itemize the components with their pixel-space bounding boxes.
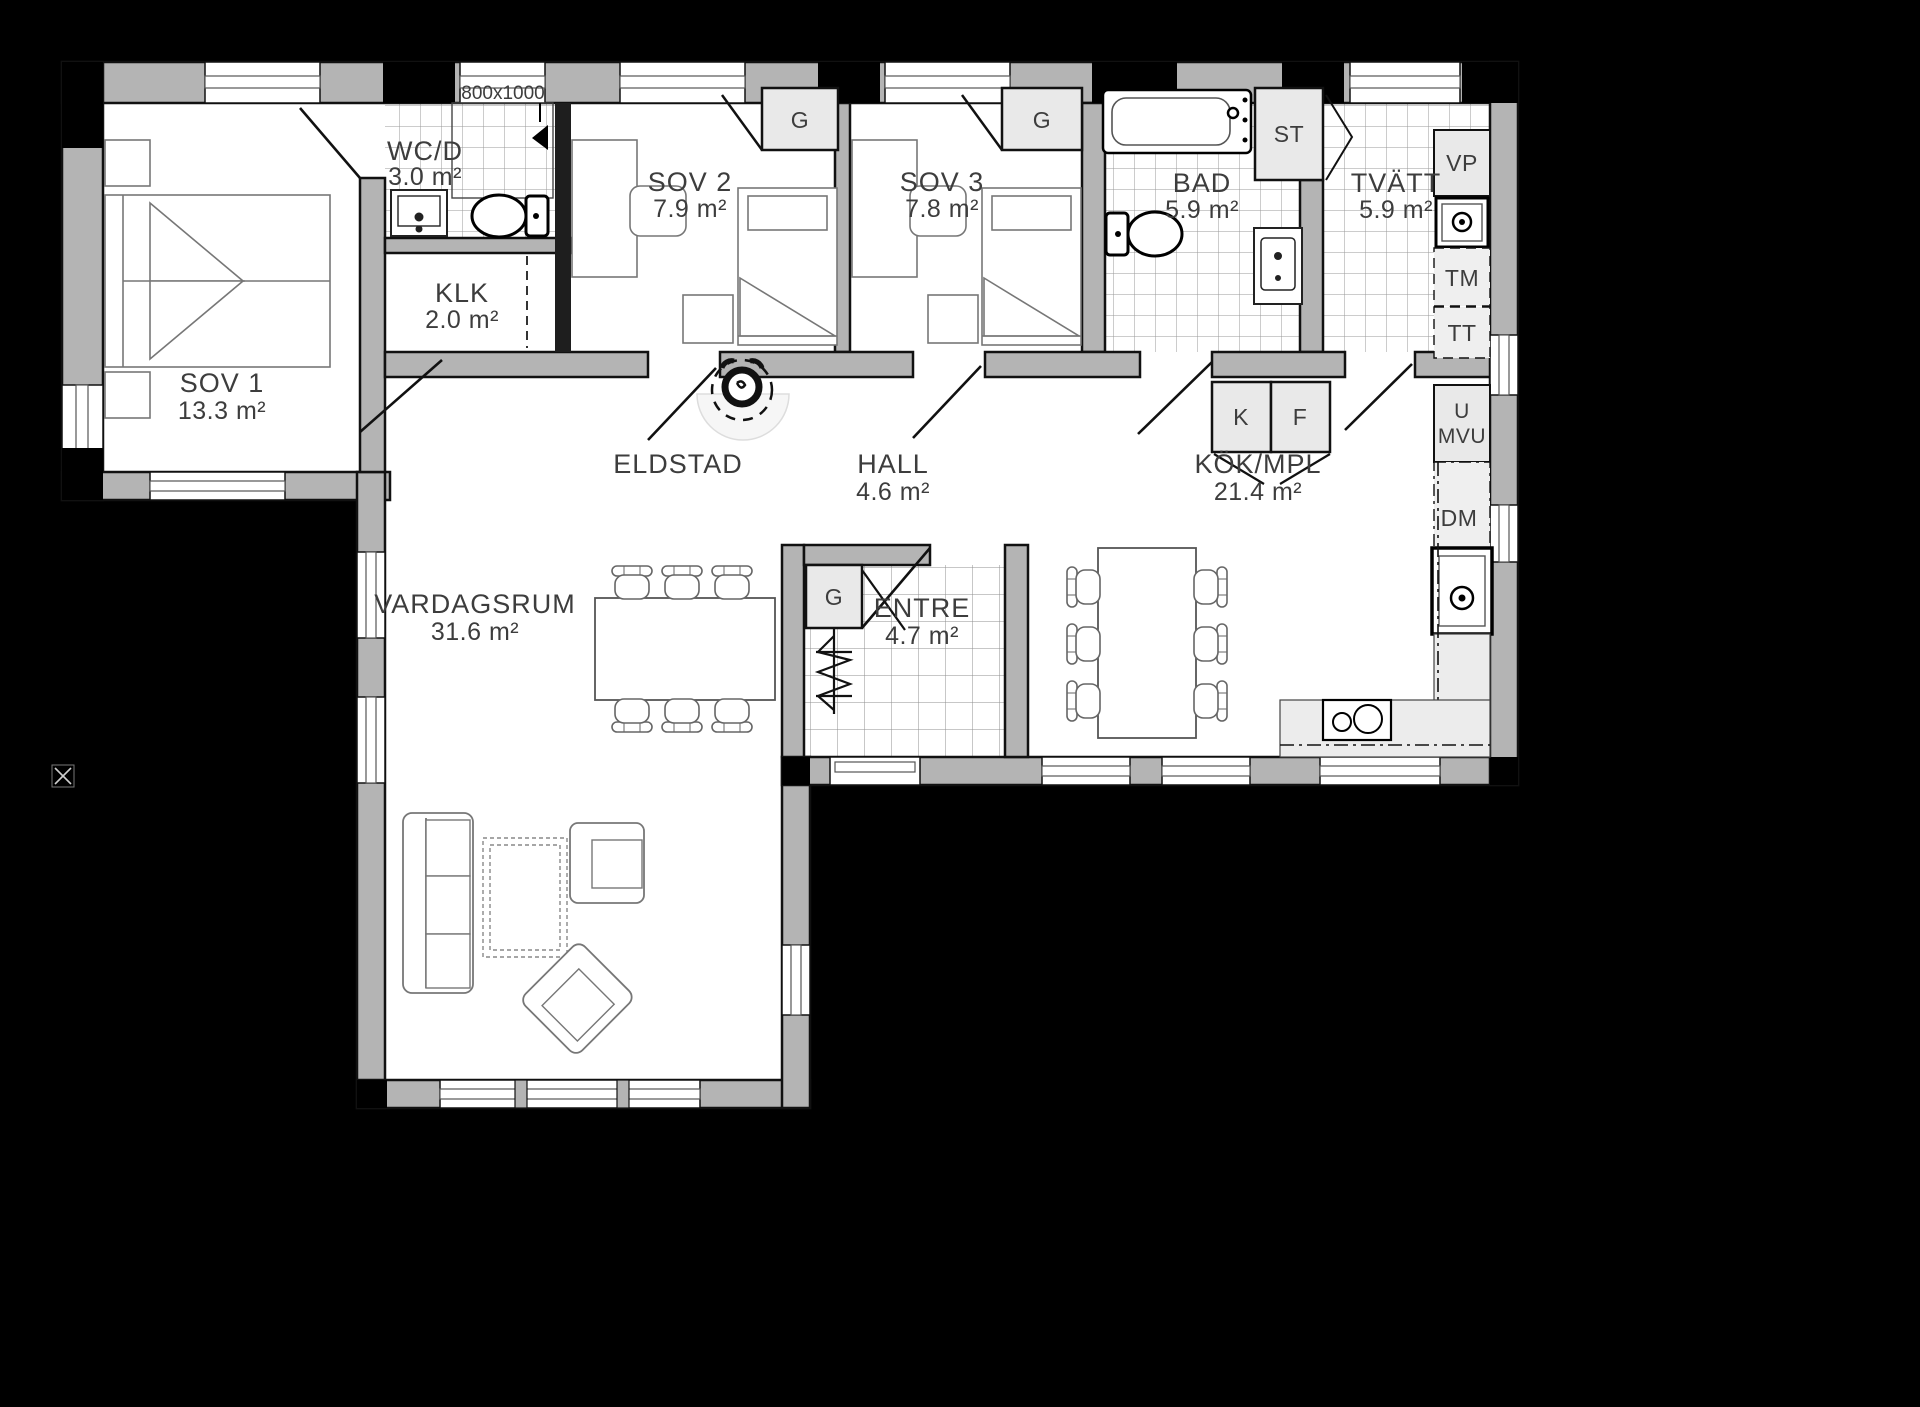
dishwasher-label: DM xyxy=(1441,505,1478,531)
floor-plan-page: SOV 1 13.3 m² WC/D 3.0 m² KLK 2.0 m² SOV… xyxy=(0,0,1920,1407)
wardrobe-label-entre: G xyxy=(825,584,843,610)
wall-entre-top xyxy=(804,545,930,565)
window-top-sov2 xyxy=(620,62,745,103)
window-top-sov3 xyxy=(885,62,1010,103)
plan-marker-icon xyxy=(52,765,74,787)
window-bottom-dining-1 xyxy=(1042,757,1130,785)
room-area-bad: 5.9 m² xyxy=(1165,196,1239,224)
bad-sink xyxy=(1254,228,1302,304)
armchair xyxy=(570,823,644,903)
room-label-tvatt: TVÄTT xyxy=(1351,168,1442,198)
room-label-vardagsrum: VARDAGSRUM xyxy=(374,589,576,619)
dryer-label: TT xyxy=(1447,320,1476,346)
kitchen-bottom-counter xyxy=(1280,700,1490,757)
window-bottom-kitchen xyxy=(1320,757,1440,785)
wardrobe-label-sov2: G xyxy=(791,107,809,133)
washing-machine-label: TM xyxy=(1445,265,1479,291)
wall-hall-top-1 xyxy=(385,352,648,377)
room-area-wcd: 3.0 m² xyxy=(388,163,462,191)
window-wing-bottom xyxy=(440,1080,700,1108)
single-bed xyxy=(982,188,1081,345)
wall-sov3-bad xyxy=(1082,103,1105,352)
kitchen-sink xyxy=(1432,548,1492,634)
room-label-bad: BAD xyxy=(1173,168,1232,198)
window-sov1-bottom xyxy=(150,472,285,500)
room-label-sov3: SOV 3 xyxy=(900,167,985,197)
wall-entre-left xyxy=(782,545,804,757)
wall-hall-top-3 xyxy=(985,352,1140,377)
sofa xyxy=(403,813,473,993)
room-area-hall: 4.6 m² xyxy=(856,478,930,506)
room-area-entre: 4.7 m² xyxy=(885,622,959,650)
wall-wcd-klk xyxy=(385,238,571,253)
shower-size-label: 800x1000 xyxy=(461,83,544,104)
room-area-sov3: 7.8 m² xyxy=(905,195,979,223)
bathtub xyxy=(1103,90,1251,153)
wall-exterior-wing-right xyxy=(782,757,810,1108)
room-label-wcd: WC/D xyxy=(387,136,463,166)
wall-entre-right xyxy=(1005,545,1028,757)
room-label-entre: ENTRE xyxy=(874,593,971,623)
wcd-sink xyxy=(391,190,447,236)
nightstand xyxy=(105,372,150,418)
room-area-vardagsrum: 31.6 m² xyxy=(431,618,519,646)
fridge-label: K xyxy=(1233,404,1249,430)
microwave-label: MVU xyxy=(1438,425,1486,448)
room-area-tvatt: 5.9 m² xyxy=(1359,196,1433,224)
oven-microwave-box xyxy=(1434,385,1490,462)
side-table xyxy=(928,295,978,343)
entrance-door xyxy=(830,757,920,785)
room-area-sov2: 7.9 m² xyxy=(653,195,727,223)
wall-hall-top-4 xyxy=(1212,352,1345,377)
dining-table-center xyxy=(595,566,775,732)
room-label-eldstad: ELDSTAD xyxy=(613,449,743,479)
window-wing-left-2 xyxy=(357,697,385,783)
window-top-sov1 xyxy=(205,62,320,103)
water-heater-label: VP xyxy=(1446,150,1478,176)
room-label-sov2: SOV 2 xyxy=(648,167,733,197)
freezer-label: F xyxy=(1293,404,1308,430)
room-label-hall: HALL xyxy=(857,449,929,479)
cleaning-closet-label: ST xyxy=(1274,121,1304,147)
wall-exterior-right xyxy=(1490,62,1518,785)
room-label-sov1: SOV 1 xyxy=(180,368,265,398)
floor-plan: SOV 1 13.3 m² WC/D 3.0 m² KLK 2.0 m² SOV… xyxy=(0,0,1920,1407)
window-right-2 xyxy=(1490,505,1518,562)
window-bottom-dining-2 xyxy=(1162,757,1250,785)
room-area-kok: 21.4 m² xyxy=(1214,478,1302,506)
wcd-toilet xyxy=(472,195,548,237)
oven-label: U xyxy=(1454,400,1470,423)
side-table xyxy=(683,295,733,343)
stove xyxy=(1323,700,1391,740)
single-bed xyxy=(738,188,837,345)
terrace-door xyxy=(782,945,810,1015)
wall-bad-tvatt xyxy=(1300,180,1323,352)
room-area-sov1: 13.3 m² xyxy=(178,397,266,425)
wardrobe-label-sov3: G xyxy=(1033,107,1051,133)
room-area-klk: 2.0 m² xyxy=(425,306,499,334)
window-top-tvatt xyxy=(1350,62,1460,103)
desk xyxy=(572,140,637,277)
nightstand xyxy=(105,140,150,186)
wall-klk-sov2 xyxy=(555,103,571,352)
window-right-1 xyxy=(1490,335,1518,395)
room-label-kok: KÖK/MPL xyxy=(1194,449,1321,479)
room-label-klk: KLK xyxy=(435,278,489,308)
double-bed xyxy=(105,195,330,367)
tvatt-sink xyxy=(1436,198,1488,247)
dining-table-kitchen xyxy=(1067,548,1227,738)
